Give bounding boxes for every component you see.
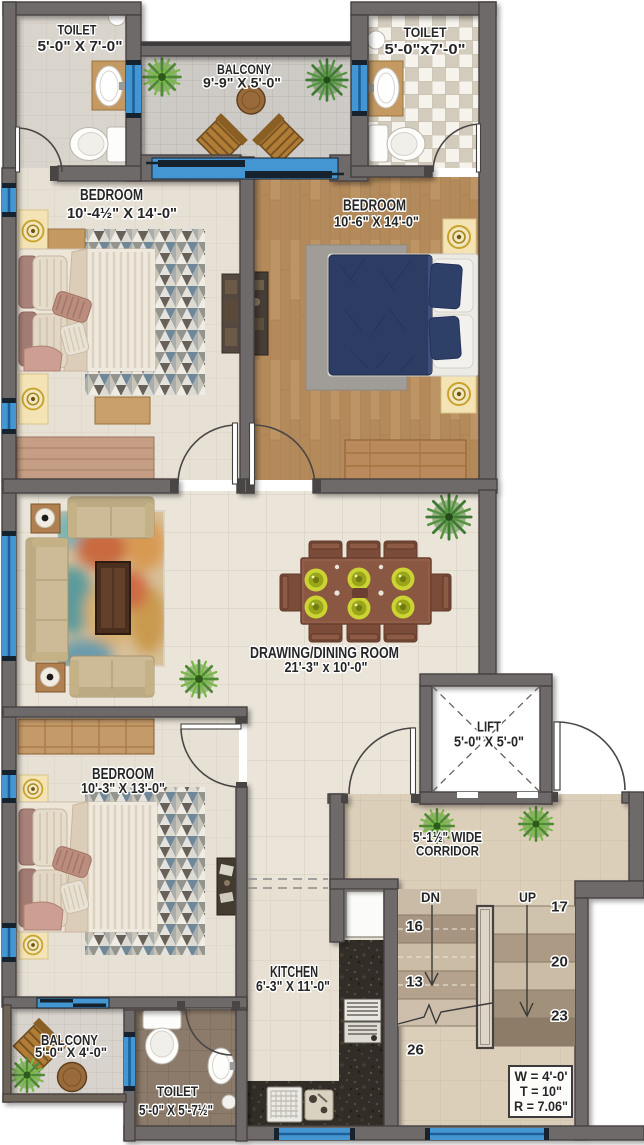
svg-text:T = 10": T = 10" xyxy=(520,1084,562,1099)
svg-text:10'-6" X 14'-0": 10'-6" X 14'-0" xyxy=(334,214,419,231)
svg-text:TOILET: TOILET xyxy=(58,22,97,38)
svg-text:R = 7.06": R = 7.06" xyxy=(514,1099,568,1114)
svg-text:17: 17 xyxy=(551,899,568,916)
svg-text:10'-4½" X 14'-0": 10'-4½" X 14'-0" xyxy=(67,205,177,222)
svg-text:16: 16 xyxy=(406,918,423,935)
svg-text:21'-3" x 10'-0": 21'-3" x 10'-0" xyxy=(285,659,368,676)
svg-text:BEDROOM: BEDROOM xyxy=(343,198,406,215)
svg-text:26: 26 xyxy=(407,1042,424,1059)
svg-text:5'-0" X 5'-7½": 5'-0" X 5'-7½" xyxy=(139,1103,213,1119)
svg-text:5'-0"x7'-0": 5'-0"x7'-0" xyxy=(385,41,466,58)
svg-text:13: 13 xyxy=(406,974,423,991)
svg-text:UP: UP xyxy=(519,889,536,905)
svg-text:23: 23 xyxy=(551,1008,568,1025)
svg-text:5'-0" X 4'-0": 5'-0" X 4'-0" xyxy=(35,1044,107,1060)
svg-text:TOILET: TOILET xyxy=(404,24,447,40)
svg-text:6'-3" X 11'-0": 6'-3" X 11'-0" xyxy=(256,978,330,995)
svg-text:W = 4'-0': W = 4'-0' xyxy=(515,1069,568,1084)
svg-text:TOILET: TOILET xyxy=(157,1083,198,1099)
svg-text:9'-9" X 5'-0": 9'-9" X 5'-0" xyxy=(203,76,281,91)
svg-text:10'-3" X 13'-0": 10'-3" X 13'-0" xyxy=(81,780,165,797)
svg-text:20: 20 xyxy=(551,954,568,971)
svg-text:CORRIDOR: CORRIDOR xyxy=(416,843,479,859)
svg-text:5'-0" X 5'-0": 5'-0" X 5'-0" xyxy=(454,734,524,751)
svg-text:DN: DN xyxy=(421,889,440,905)
svg-text:5'-0" X 7'-0": 5'-0" X 7'-0" xyxy=(38,38,123,55)
svg-text:BEDROOM: BEDROOM xyxy=(80,187,143,204)
